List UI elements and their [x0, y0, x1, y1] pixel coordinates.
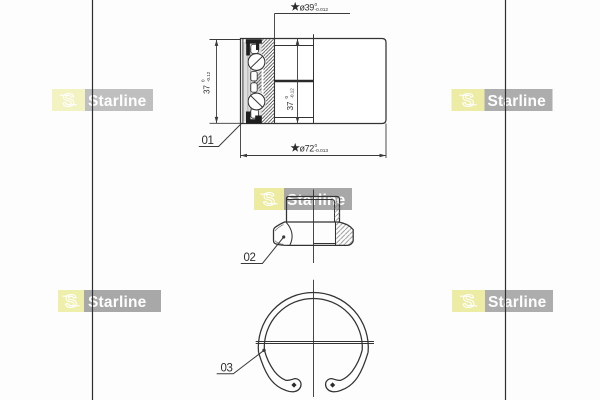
- svg-text:Starline: Starline: [88, 93, 147, 110]
- svg-text:Starline: Starline: [88, 294, 147, 311]
- svg-text:-0.013: -0.013: [315, 148, 329, 154]
- svg-text:ø72: ø72: [300, 144, 315, 154]
- svg-text:0: 0: [315, 143, 318, 149]
- svg-text:37: 37: [286, 101, 295, 110]
- svg-text:S: S: [462, 91, 474, 111]
- svg-text:S: S: [462, 292, 474, 312]
- svg-text:03: 03: [221, 363, 233, 375]
- svg-text:02: 02: [244, 252, 256, 264]
- svg-text:S: S: [62, 91, 74, 111]
- svg-text:-0.012: -0.012: [315, 7, 329, 13]
- svg-text:37: 37: [202, 85, 211, 94]
- svg-text:S: S: [263, 190, 275, 210]
- svg-text:Starline: Starline: [488, 294, 547, 311]
- svg-text:01: 01: [202, 135, 214, 147]
- svg-text:Starline: Starline: [488, 93, 547, 110]
- svg-text:S: S: [65, 292, 77, 312]
- svg-text:0: 0: [315, 2, 318, 8]
- svg-text:-0.12: -0.12: [289, 88, 294, 99]
- svg-text:ø39: ø39: [300, 3, 315, 13]
- svg-text:-0.12: -0.12: [206, 71, 211, 82]
